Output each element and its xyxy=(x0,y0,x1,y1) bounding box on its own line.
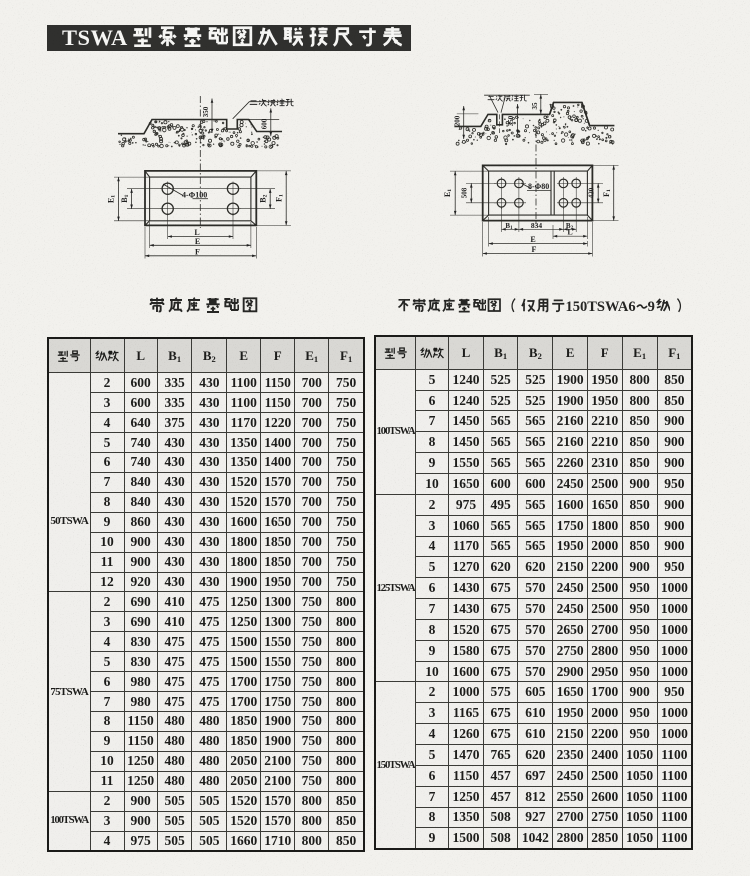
svg-text:4-Φ100: 4-Φ100 xyxy=(182,191,207,200)
svg-text:600: 600 xyxy=(261,118,269,129)
svg-text:E1: E1 xyxy=(443,189,453,197)
svg-text:508: 508 xyxy=(461,187,469,198)
svg-text:E: E xyxy=(530,235,535,244)
svg-text:F: F xyxy=(195,247,200,256)
svg-text:834: 834 xyxy=(531,221,543,230)
svg-text:420: 420 xyxy=(588,187,596,198)
svg-text:350: 350 xyxy=(202,106,210,117)
svg-text:B1: B1 xyxy=(505,222,513,231)
svg-text:L: L xyxy=(567,228,572,237)
svg-text:8-Φ80: 8-Φ80 xyxy=(528,182,549,191)
svg-text:E1: E1 xyxy=(107,195,117,203)
svg-text:E: E xyxy=(195,237,200,246)
svg-text:F: F xyxy=(532,245,537,254)
svg-text:F1: F1 xyxy=(602,189,612,197)
svg-text:F1: F1 xyxy=(275,194,285,202)
svg-text:B2: B2 xyxy=(259,194,269,202)
svg-text:200: 200 xyxy=(454,115,462,126)
svg-text:L: L xyxy=(194,228,199,237)
svg-text:350: 350 xyxy=(507,115,515,126)
svg-text:35: 35 xyxy=(531,102,539,110)
svg-text:B1: B1 xyxy=(120,194,130,202)
